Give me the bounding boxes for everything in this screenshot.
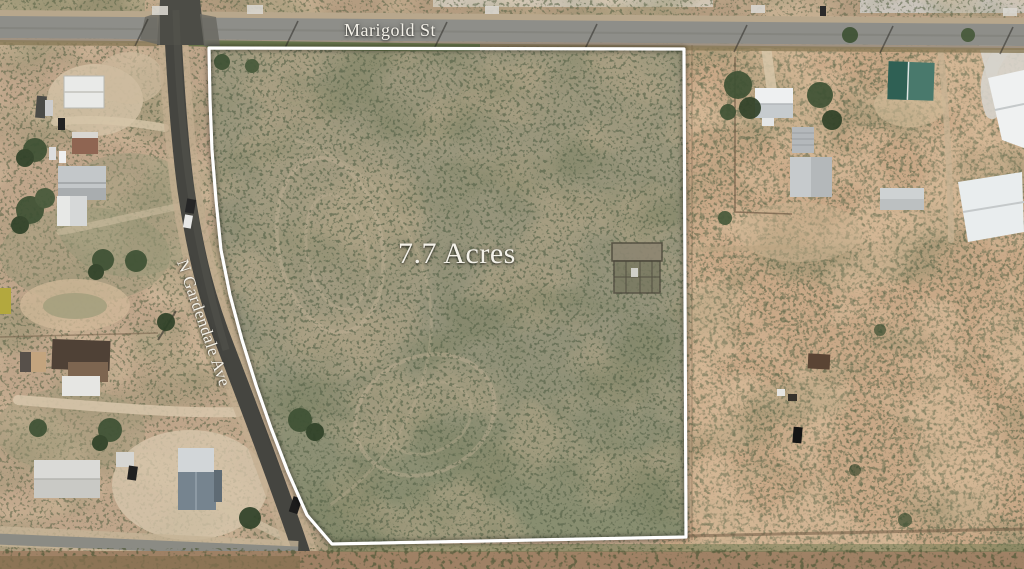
white-van: [45, 100, 53, 116]
yellow-structure: [0, 288, 11, 314]
cattle-pens: [612, 243, 662, 293]
street-label-marigold: Marigold St: [330, 20, 450, 41]
satellite-imagery: [0, 0, 1024, 569]
aerial-parcel-map: Marigold St N Gardendale Ave 7.7 Acres: [0, 0, 1024, 569]
parcel-acreage-label: 7.7 Acres: [398, 237, 516, 271]
green-roof-shed: [887, 61, 934, 101]
black-pickup-field: [792, 427, 802, 444]
